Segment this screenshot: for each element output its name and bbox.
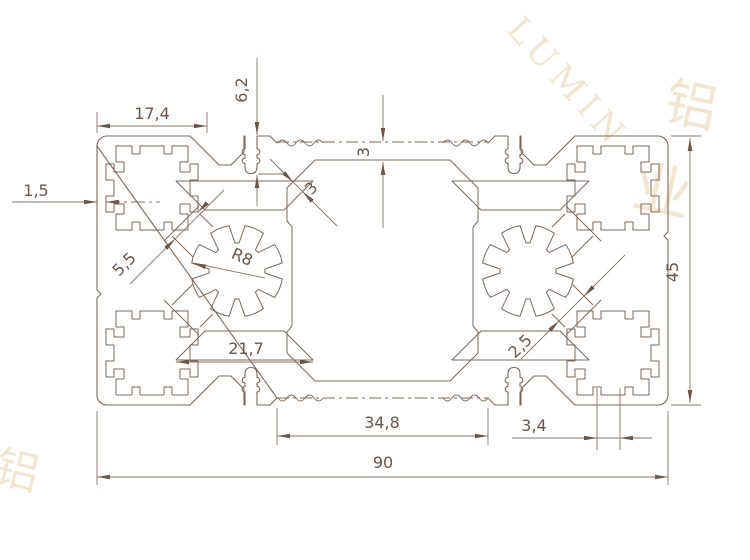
dim-label-34-8: 34,8 (364, 413, 400, 432)
watermark-glyph-corner: 铝 (0, 441, 45, 501)
dim-label-3-4: 3,4 (521, 416, 546, 435)
dimension-arrow (584, 436, 597, 441)
dimension-arrow (193, 263, 206, 269)
dim-label-3-top: 3 (354, 147, 373, 157)
dimension-arrow (97, 124, 110, 129)
dimension-arrow (255, 122, 260, 135)
dimension-arrow (584, 285, 595, 296)
dimension-arrow (381, 162, 386, 175)
technical-drawing-page: LUMIN 铝 业 铝 (0, 0, 750, 560)
dimension-arrow (194, 124, 207, 129)
dim-label-90: 90 (373, 453, 393, 472)
corner-chamfer-wall (164, 206, 199, 241)
dim-line-5-5 (130, 190, 224, 284)
dim-label-r8: R8 (229, 244, 256, 270)
dimension-arrow (548, 321, 559, 332)
dimension-arrow (97, 475, 110, 480)
dimension-arrow (688, 390, 693, 403)
watermark: LUMIN 铝 业 铝 (0, 9, 723, 501)
dim-label-5-5: 5,5 (108, 248, 139, 279)
dimension-arrow (84, 200, 97, 205)
dim-label-2-5: 2,5 (504, 330, 535, 361)
dimension-arrow (282, 171, 293, 182)
dimension-arrow (620, 436, 633, 441)
corner-cavity-maze (106, 146, 198, 230)
dim-label-45: 45 (663, 262, 682, 282)
watermark-glyph-cjk2: 业 (627, 152, 698, 231)
dim-label-6-2: 6,2 (232, 77, 251, 102)
dimension-arrow (106, 200, 119, 205)
watermark-text-latin: LUMIN (498, 9, 636, 156)
extrusion-profile-drawing: LUMIN 铝 业 铝 (0, 0, 750, 560)
dimension-arrow (475, 434, 488, 439)
dimension-arrow (381, 128, 386, 141)
vslot-wall-outer (200, 214, 213, 227)
spline-hole-right (483, 226, 574, 317)
profile-geometry (97, 136, 668, 405)
watermark-glyph-cjk: 铝 (659, 72, 722, 142)
spline-hole-left (192, 226, 283, 317)
dimension-arrow (655, 475, 668, 480)
dim-label-21-7: 21,7 (228, 339, 264, 358)
profile-outline (97, 136, 668, 405)
dim-label-1-5: 1,5 (23, 181, 48, 200)
dimension-arrow (277, 434, 290, 439)
dimension-arrow (688, 138, 693, 151)
dim-label-17-4: 17,4 (134, 104, 170, 123)
